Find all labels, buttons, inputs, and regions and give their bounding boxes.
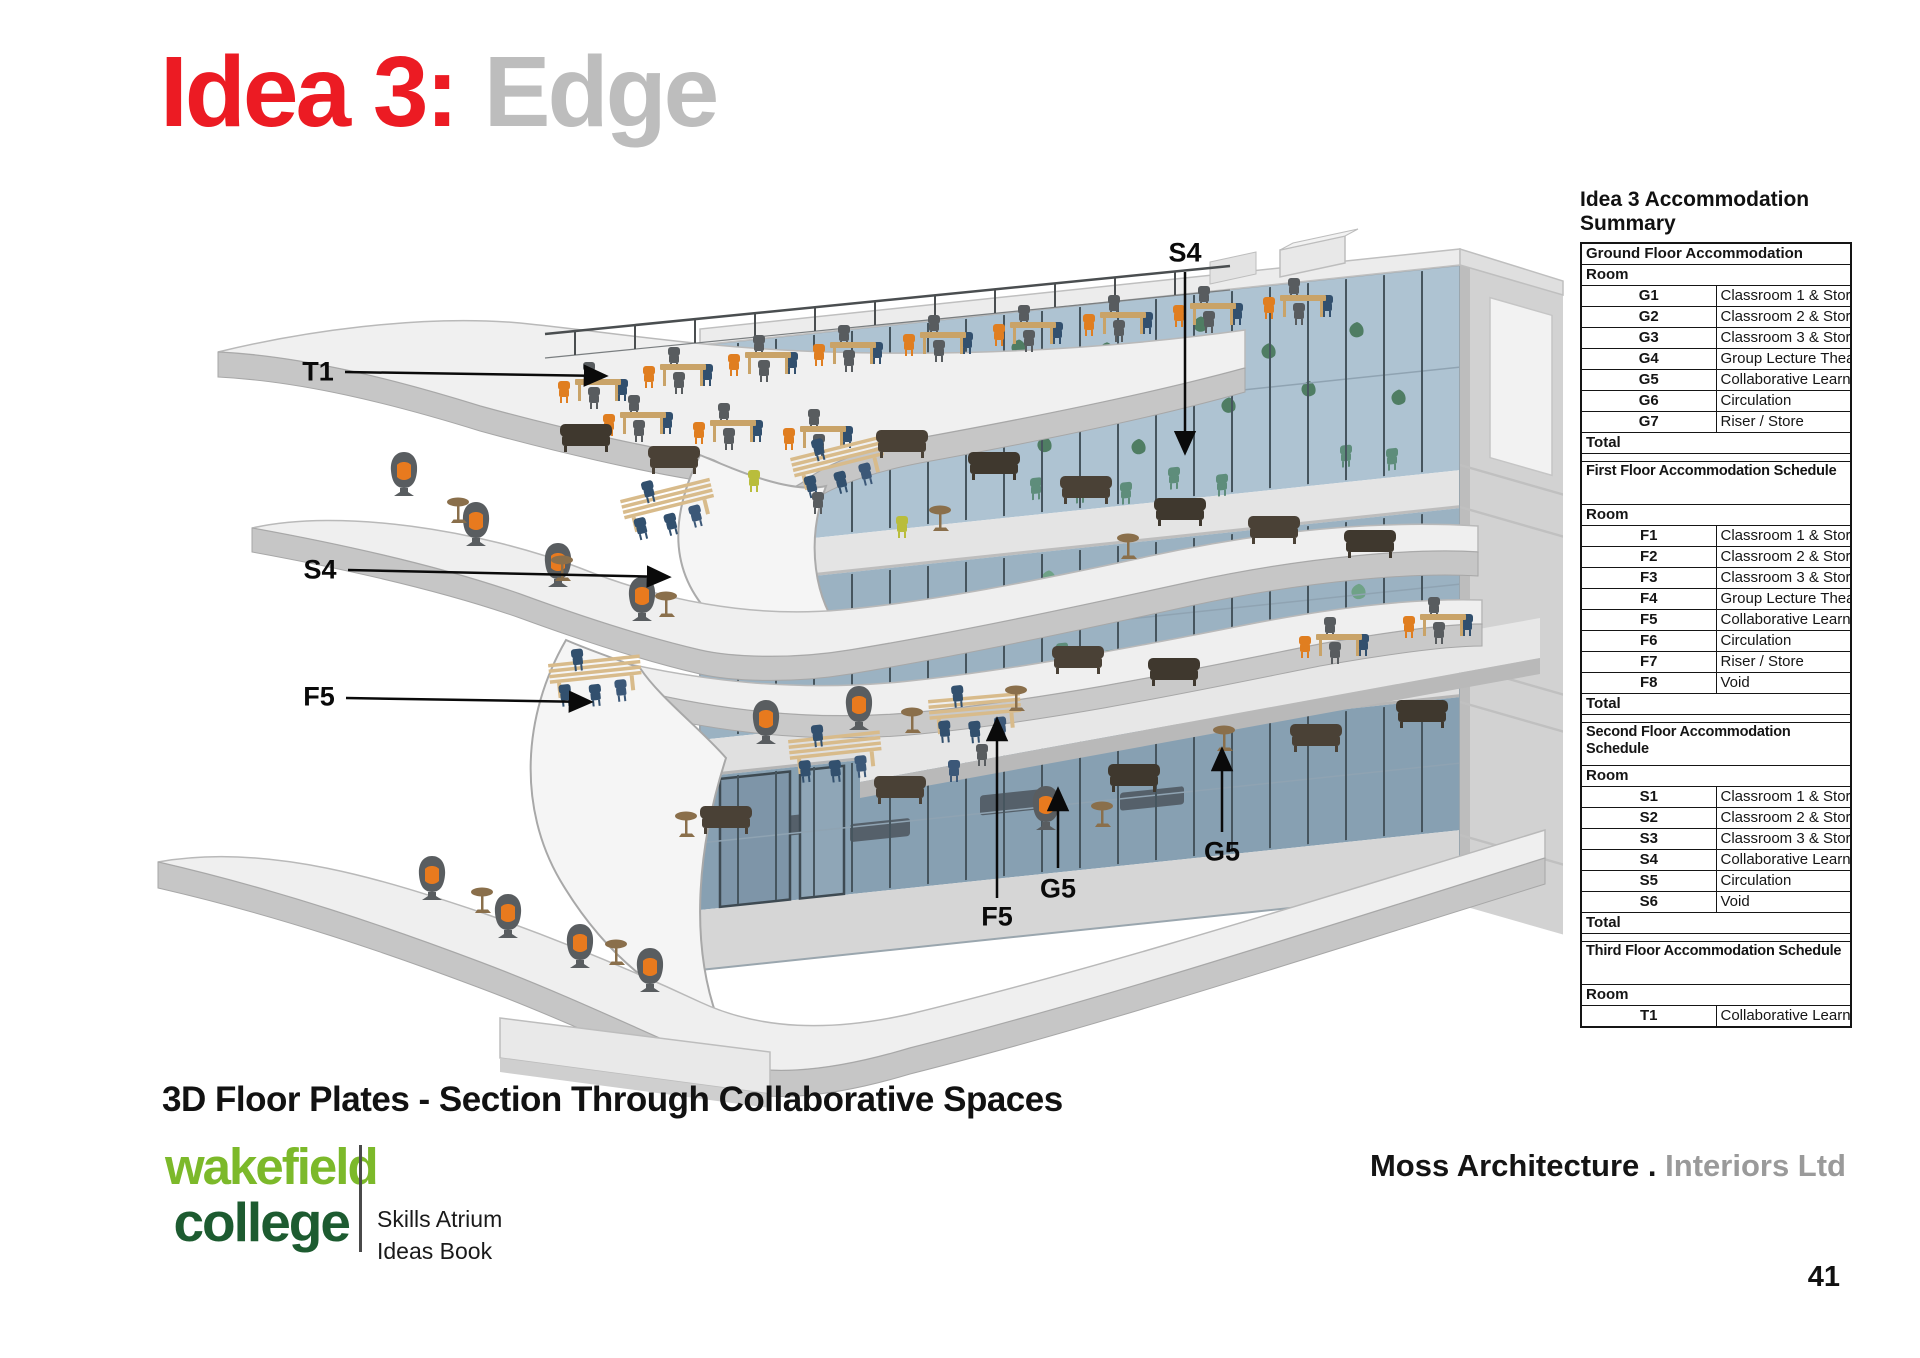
room-name: Collaborative Learning	[1716, 850, 1851, 871]
summary-table: Ground Floor AccommodationRoomG1Classroo…	[1580, 242, 1852, 1028]
second-floor-plate	[252, 520, 1478, 656]
room-name: Group Lecture Theatre	[1716, 589, 1851, 610]
room-code: S1	[1581, 787, 1716, 808]
room-code: F3	[1581, 568, 1716, 589]
section-header: Ground Floor Accommodation	[1581, 243, 1851, 265]
room-row: F7Riser / Store	[1581, 652, 1851, 673]
first-floor-plate	[620, 600, 1482, 716]
section-header: Second Floor Accommodation Schedule	[1581, 723, 1851, 766]
spacer-row	[1581, 454, 1851, 462]
room-row: G5Collaborative Learning	[1581, 370, 1851, 391]
room-name: Classroom 2 & Store	[1716, 808, 1851, 829]
total-label: Total	[1581, 433, 1851, 454]
tagline-line2: Ideas Book	[377, 1235, 502, 1267]
room-name: Classroom 2 & Store	[1716, 547, 1851, 568]
annotation-arrow-s4-left	[348, 570, 668, 577]
room-name: Circulation	[1716, 631, 1851, 652]
room-code: S5	[1581, 871, 1716, 892]
room-name: Riser / Store	[1716, 412, 1851, 433]
room-row: S4Collaborative Learning	[1581, 850, 1851, 871]
room-row: G1Classroom 1 & Store	[1581, 286, 1851, 307]
summary-title: Idea 3 Accommodation Summary	[1580, 188, 1812, 235]
room-row: S5Circulation	[1581, 871, 1851, 892]
page-number: 41	[1808, 1261, 1840, 1294]
room-row: S1Classroom 1 & Store	[1581, 787, 1851, 808]
room-name: Void	[1716, 892, 1851, 913]
total-label-row: Total	[1581, 694, 1851, 715]
room-name: Classroom 2 & Store	[1716, 307, 1851, 328]
total-label-row: Total	[1581, 913, 1851, 934]
accommodation-summary: Idea 3 Accommodation Summary Ground Floo…	[1580, 188, 1852, 1028]
section-header: First Floor Accommodation Schedule	[1581, 462, 1851, 505]
room-column-label-row: Room	[1581, 766, 1851, 787]
room-row: F8Void	[1581, 673, 1851, 694]
section-header-row: Second Floor Accommodation Schedule	[1581, 723, 1851, 766]
room-row: T1Collaborative Learning	[1581, 1006, 1851, 1028]
accommodation-table: Ground Floor AccommodationRoomG1Classroo…	[1580, 242, 1852, 1028]
annotation-arrows	[345, 272, 1222, 898]
annotation-label-f5-3: F5	[303, 684, 335, 711]
room-code: G1	[1581, 286, 1716, 307]
logo-college-text: college	[165, 1195, 349, 1250]
section-header-row: Ground Floor Accommodation	[1581, 243, 1851, 265]
title-prefix: Idea 3:	[160, 36, 456, 148]
room-name: Riser / Store	[1716, 652, 1851, 673]
room-row: G7Riser / Store	[1581, 412, 1851, 433]
building-volume	[700, 229, 1563, 970]
room-row: F2Classroom 2 & Store	[1581, 547, 1851, 568]
room-code: F4	[1581, 589, 1716, 610]
room-row: G3Classroom 3 & Store	[1581, 328, 1851, 349]
room-code: S2	[1581, 808, 1716, 829]
terrace-railing	[545, 266, 1230, 358]
room-code: S4	[1581, 850, 1716, 871]
room-column-label-row: Room	[1581, 265, 1851, 286]
annotation-label-f5-4: F5	[981, 904, 1013, 931]
room-code: G4	[1581, 349, 1716, 370]
section-header-row: First Floor Accommodation Schedule	[1581, 462, 1851, 505]
room-row: S3Classroom 3 & Store	[1581, 829, 1851, 850]
second-floor-furniture	[391, 424, 1396, 621]
room-code: T1	[1581, 1006, 1716, 1028]
total-label: Total	[1581, 694, 1851, 715]
annotation-label-s4-2: S4	[303, 557, 336, 584]
total-label: Total	[1581, 913, 1851, 934]
third-floor-plate	[218, 321, 1245, 494]
room-name: Collaborative Learning	[1716, 1006, 1851, 1028]
room-row: F3Classroom 3 & Store	[1581, 568, 1851, 589]
ground-floor-plate	[158, 830, 1545, 1070]
spacer-row	[1581, 715, 1851, 723]
wakefield-college-logo: wakefield college	[165, 1141, 349, 1250]
room-row: G2Classroom 2 & Store	[1581, 307, 1851, 328]
annotation-label-t1-0: T1	[302, 359, 334, 386]
brand-secondary: Interiors Ltd	[1665, 1148, 1846, 1183]
brand-footer: Moss Architecture . Interiors Ltd	[1370, 1148, 1846, 1184]
room-row: S2Classroom 2 & Store	[1581, 808, 1851, 829]
room-code: S6	[1581, 892, 1716, 913]
section-header: Third Floor Accommodation Schedule	[1581, 942, 1851, 985]
room-row: F4Group Lecture Theatre	[1581, 589, 1851, 610]
annotation-label-g5-5: G5	[1040, 876, 1076, 903]
first-floor-furniture	[547, 597, 1473, 747]
room-column-label-row: Room	[1581, 985, 1851, 1006]
room-column-label: Room	[1581, 766, 1851, 787]
room-row: G4Group Lecture Theatre	[1581, 349, 1851, 370]
room-name: Classroom 3 & Store	[1716, 568, 1851, 589]
room-name: Group Lecture Theatre	[1716, 349, 1851, 370]
room-row: S6Void	[1581, 892, 1851, 913]
room-code: G7	[1581, 412, 1716, 433]
room-code: G3	[1581, 328, 1716, 349]
room-name: Void	[1716, 673, 1851, 694]
room-name: Classroom 1 & Store	[1716, 286, 1851, 307]
room-name: Circulation	[1716, 391, 1851, 412]
spacer	[1581, 715, 1851, 723]
room-code: G2	[1581, 307, 1716, 328]
room-code: G6	[1581, 391, 1716, 412]
logo-tagline: Skills Atrium Ideas Book	[377, 1203, 502, 1267]
slide: Idea 3:Edge	[0, 0, 1920, 1358]
annotation-arrow-t1	[345, 372, 605, 376]
room-row: F6Circulation	[1581, 631, 1851, 652]
room-name: Classroom 1 & Store	[1716, 526, 1851, 547]
annotation-label-g5-6: G5	[1204, 839, 1240, 866]
room-code: F8	[1581, 673, 1716, 694]
annotation-label-s4-1: S4	[1168, 240, 1201, 267]
annotation-arrow-f5-left	[346, 698, 590, 702]
floor-plates	[158, 321, 1545, 1108]
spacer	[1581, 454, 1851, 462]
room-name: Collaborative Learning	[1716, 610, 1851, 631]
room-column-label-row: Room	[1581, 505, 1851, 526]
room-code: F6	[1581, 631, 1716, 652]
room-name: Classroom 1 & Store	[1716, 787, 1851, 808]
room-row: F5Collaborative Learning	[1581, 610, 1851, 631]
logo-wakefield-text: wakefield	[165, 1141, 349, 1192]
section-header-row: Third Floor Accommodation Schedule	[1581, 942, 1851, 985]
room-name: Classroom 3 & Store	[1716, 829, 1851, 850]
room-code: F5	[1581, 610, 1716, 631]
total-label-row: Total	[1581, 433, 1851, 454]
room-column-label: Room	[1581, 265, 1851, 286]
room-code: F2	[1581, 547, 1716, 568]
room-code: S3	[1581, 829, 1716, 850]
tagline-line1: Skills Atrium	[377, 1203, 502, 1235]
room-column-label: Room	[1581, 985, 1851, 1006]
room-name: Circulation	[1716, 871, 1851, 892]
title-suffix: Edge	[484, 36, 716, 148]
third-floor-furniture	[558, 278, 1333, 456]
room-row: G6Circulation	[1581, 391, 1851, 412]
room-name: Collaborative Learning	[1716, 370, 1851, 391]
figure-caption: 3D Floor Plates - Section Through Collab…	[162, 1080, 1063, 1120]
brand-primary: Moss Architecture .	[1370, 1148, 1657, 1183]
room-code: F7	[1581, 652, 1716, 673]
spacer-row	[1581, 934, 1851, 942]
room-row: F1Classroom 1 & Store	[1581, 526, 1851, 547]
room-column-label: Room	[1581, 505, 1851, 526]
room-code: F1	[1581, 526, 1716, 547]
spacer	[1581, 934, 1851, 942]
ground-floor-furniture	[419, 700, 1448, 992]
page-title: Idea 3:Edge	[160, 42, 716, 142]
room-name: Classroom 3 & Store	[1716, 328, 1851, 349]
logo-divider	[359, 1145, 362, 1252]
room-code: G5	[1581, 370, 1716, 391]
